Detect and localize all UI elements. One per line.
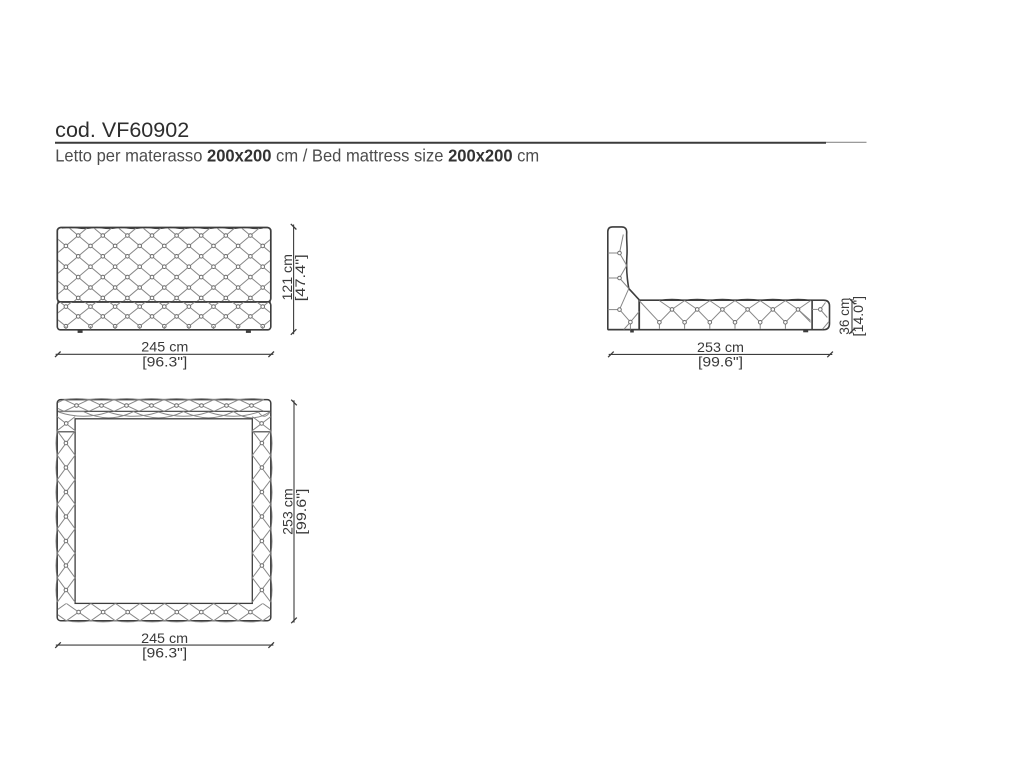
svg-text:245 cm: 245 cm: [141, 631, 188, 647]
svg-text:[99.6"]: [99.6"]: [294, 489, 310, 535]
svg-text:[96.3"]: [96.3"]: [142, 355, 187, 371]
svg-text:[47.4"]: [47.4"]: [293, 254, 309, 301]
svg-text:cod. VF60902: cod. VF60902: [55, 119, 189, 142]
svg-text:245 cm: 245 cm: [141, 340, 188, 356]
svg-text:[99.6"]: [99.6"]: [698, 355, 743, 371]
svg-text:Letto per materasso 200x200 cm: Letto per materasso 200x200 cm / Bed mat…: [55, 145, 539, 165]
svg-text:[96.3"]: [96.3"]: [142, 646, 187, 662]
svg-text:[14.0"]: [14.0"]: [851, 296, 867, 337]
svg-text:253 cm: 253 cm: [697, 340, 744, 356]
